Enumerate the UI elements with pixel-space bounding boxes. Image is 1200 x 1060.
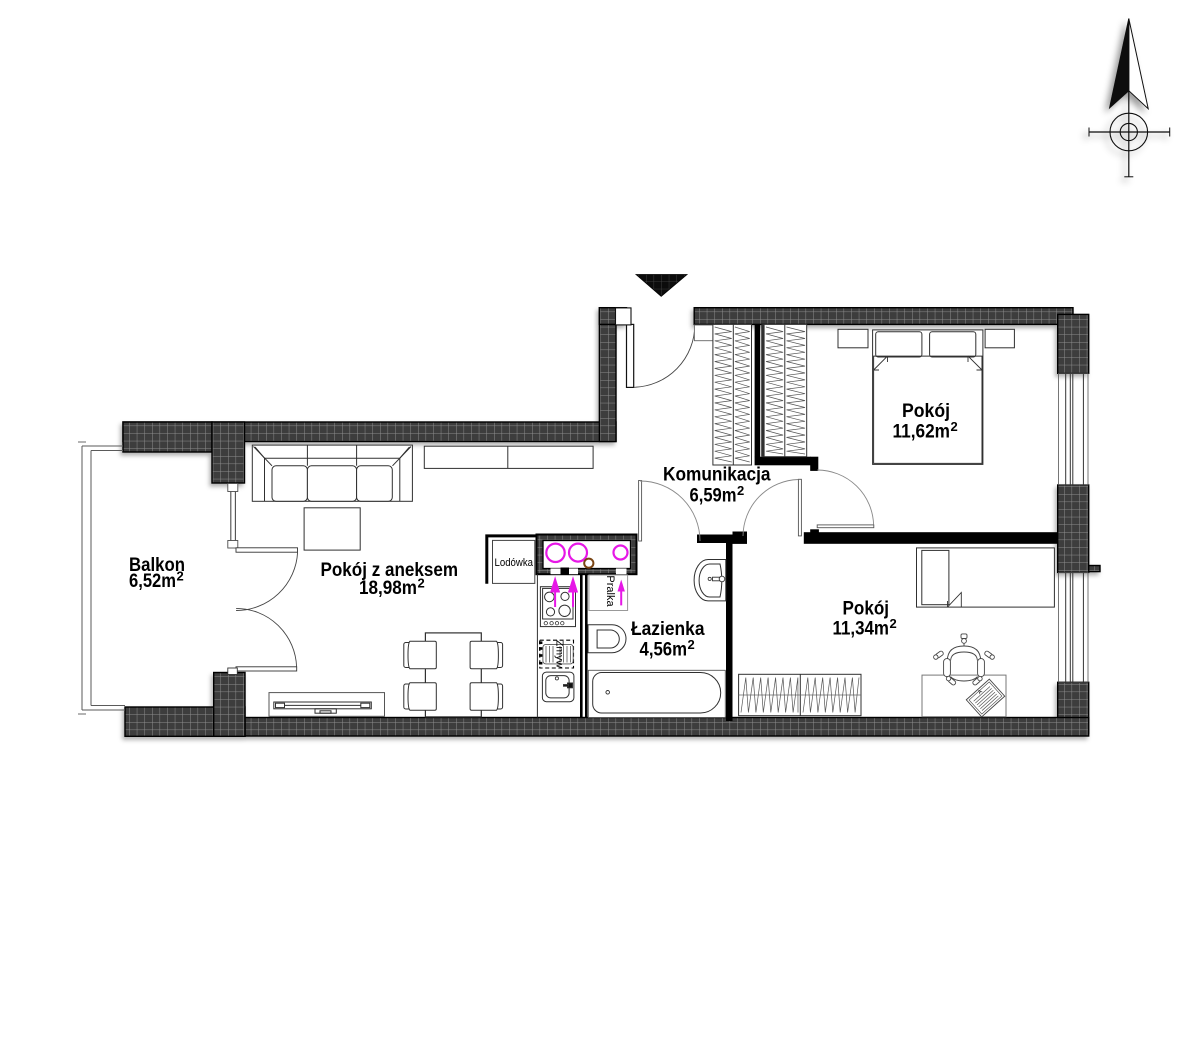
svg-text:Komunikacja: Komunikacja [663,465,771,486]
svg-text:2: 2 [890,616,897,631]
svg-text:Pralka: Pralka [604,575,616,607]
svg-text:6,59m: 6,59m [690,486,737,507]
svg-text:18,98m: 18,98m [359,578,417,599]
svg-text:4,56m: 4,56m [640,640,688,661]
svg-text:6,52m: 6,52m [129,571,176,592]
svg-text:2: 2 [737,483,744,498]
svg-text:11,34m: 11,34m [833,619,890,640]
svg-text:Lodówka: Lodówka [495,557,534,569]
svg-text:2: 2 [951,419,958,434]
svg-text:2: 2 [688,637,695,652]
svg-text:2: 2 [177,569,184,584]
svg-text:11,62m: 11,62m [893,422,951,443]
svg-text:Pokój: Pokój [902,401,950,422]
svg-text:2: 2 [418,576,425,591]
svg-text:Zmyw: Zmyw [554,640,566,668]
svg-text:Pokój: Pokój [843,599,890,620]
